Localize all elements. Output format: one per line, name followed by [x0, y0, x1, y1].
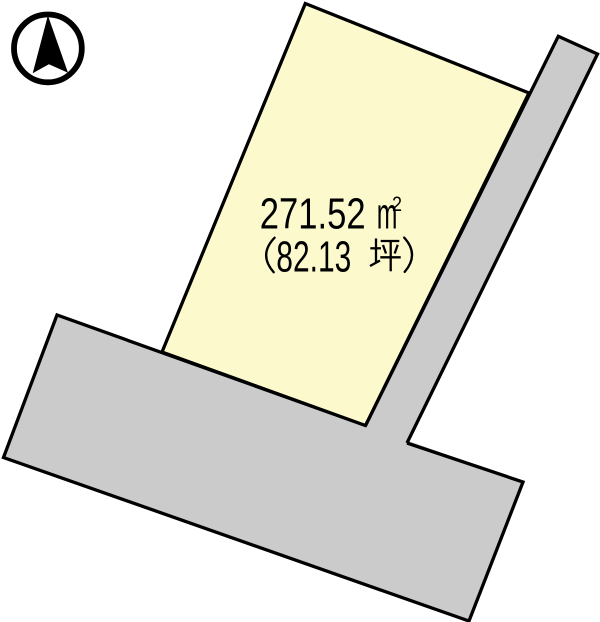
svg-text:2: 2: [392, 192, 402, 216]
svg-text:271.52: 271.52: [260, 190, 366, 239]
svg-text:82.13: 82.13: [276, 233, 351, 282]
